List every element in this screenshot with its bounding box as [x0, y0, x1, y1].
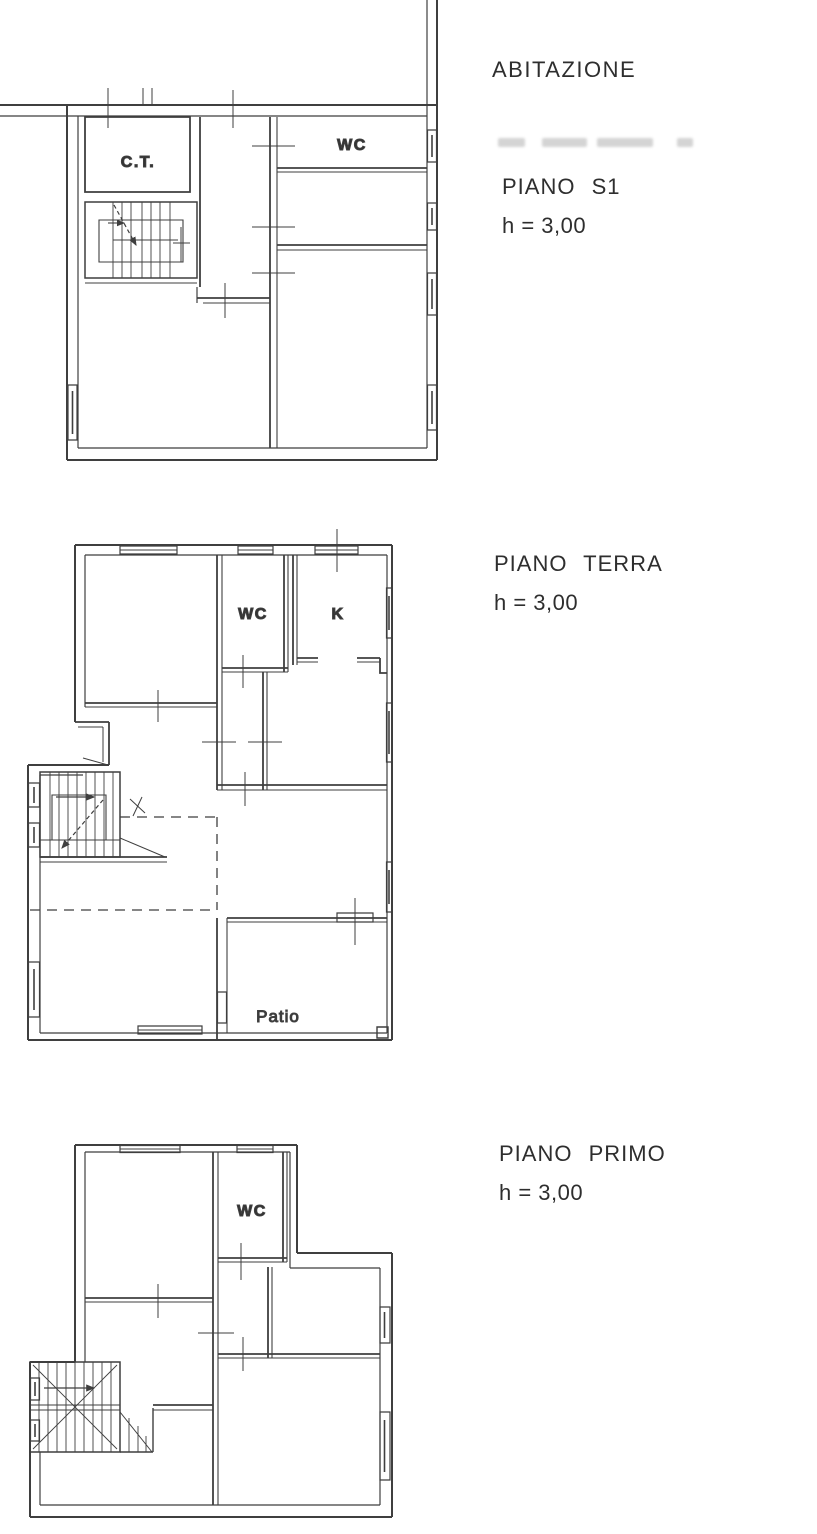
terra-interior-walls — [40, 555, 387, 862]
floor-height-s1: h = 3,00 — [502, 213, 620, 239]
floor-plan-primo: WC — [30, 1145, 392, 1517]
terra-portico-dashed-lines — [30, 817, 217, 910]
floor-plan-s1: C.T. WC — [0, 0, 437, 460]
s1-stairs — [85, 202, 197, 278]
terra-patio-walls — [217, 898, 388, 1040]
floor-title-terra: PIANO TERRA — [494, 551, 663, 577]
room-label-patio: Patio — [256, 1007, 300, 1026]
floor-title-s1: PIANO S1 — [502, 174, 620, 200]
caption-piano-s1: PIANO S1 h = 3,00 — [502, 174, 620, 239]
terra-stairs — [40, 772, 165, 857]
room-label-k: K — [331, 606, 344, 623]
primo-stairs — [30, 1362, 153, 1452]
s1-windows — [68, 130, 437, 440]
room-label-wc-s1: WC — [337, 137, 367, 154]
room-label-wc-primo: WC — [237, 1203, 267, 1220]
floor-plan-terra: WC K Patio — [28, 529, 392, 1040]
floor-plans-drawing: C.T. WC — [0, 0, 817, 1534]
caption-piano-terra: PIANO TERRA h = 3,00 — [494, 551, 663, 616]
floor-height-terra: h = 3,00 — [494, 590, 663, 616]
floor-title-primo: PIANO PRIMO — [499, 1141, 666, 1167]
s1-outer-walls — [0, 0, 437, 460]
building-title: ABITAZIONE — [492, 57, 636, 83]
primo-outer-walls — [30, 1145, 392, 1517]
drawing-sheet: C.T. WC — [0, 0, 817, 1534]
room-label-ct: C.T. — [121, 154, 155, 171]
room-label-wc-terra: WC — [238, 606, 268, 623]
caption-piano-primo: PIANO PRIMO h = 3,00 — [499, 1141, 666, 1206]
floor-height-primo: h = 3,00 — [499, 1180, 666, 1206]
